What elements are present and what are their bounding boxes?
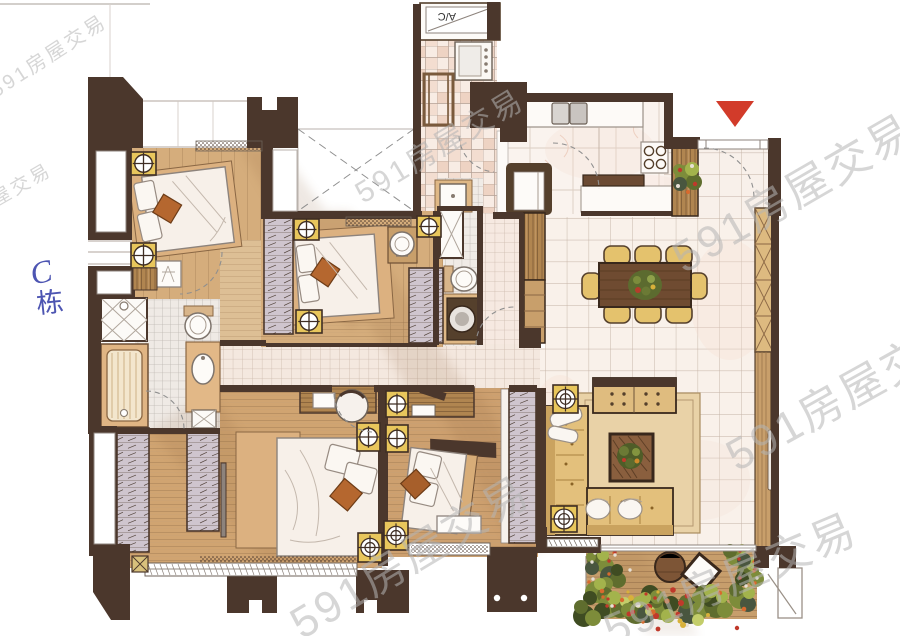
svg-text:A/C: A/C [438, 10, 456, 22]
svg-text:栋: 栋 [35, 286, 65, 319]
